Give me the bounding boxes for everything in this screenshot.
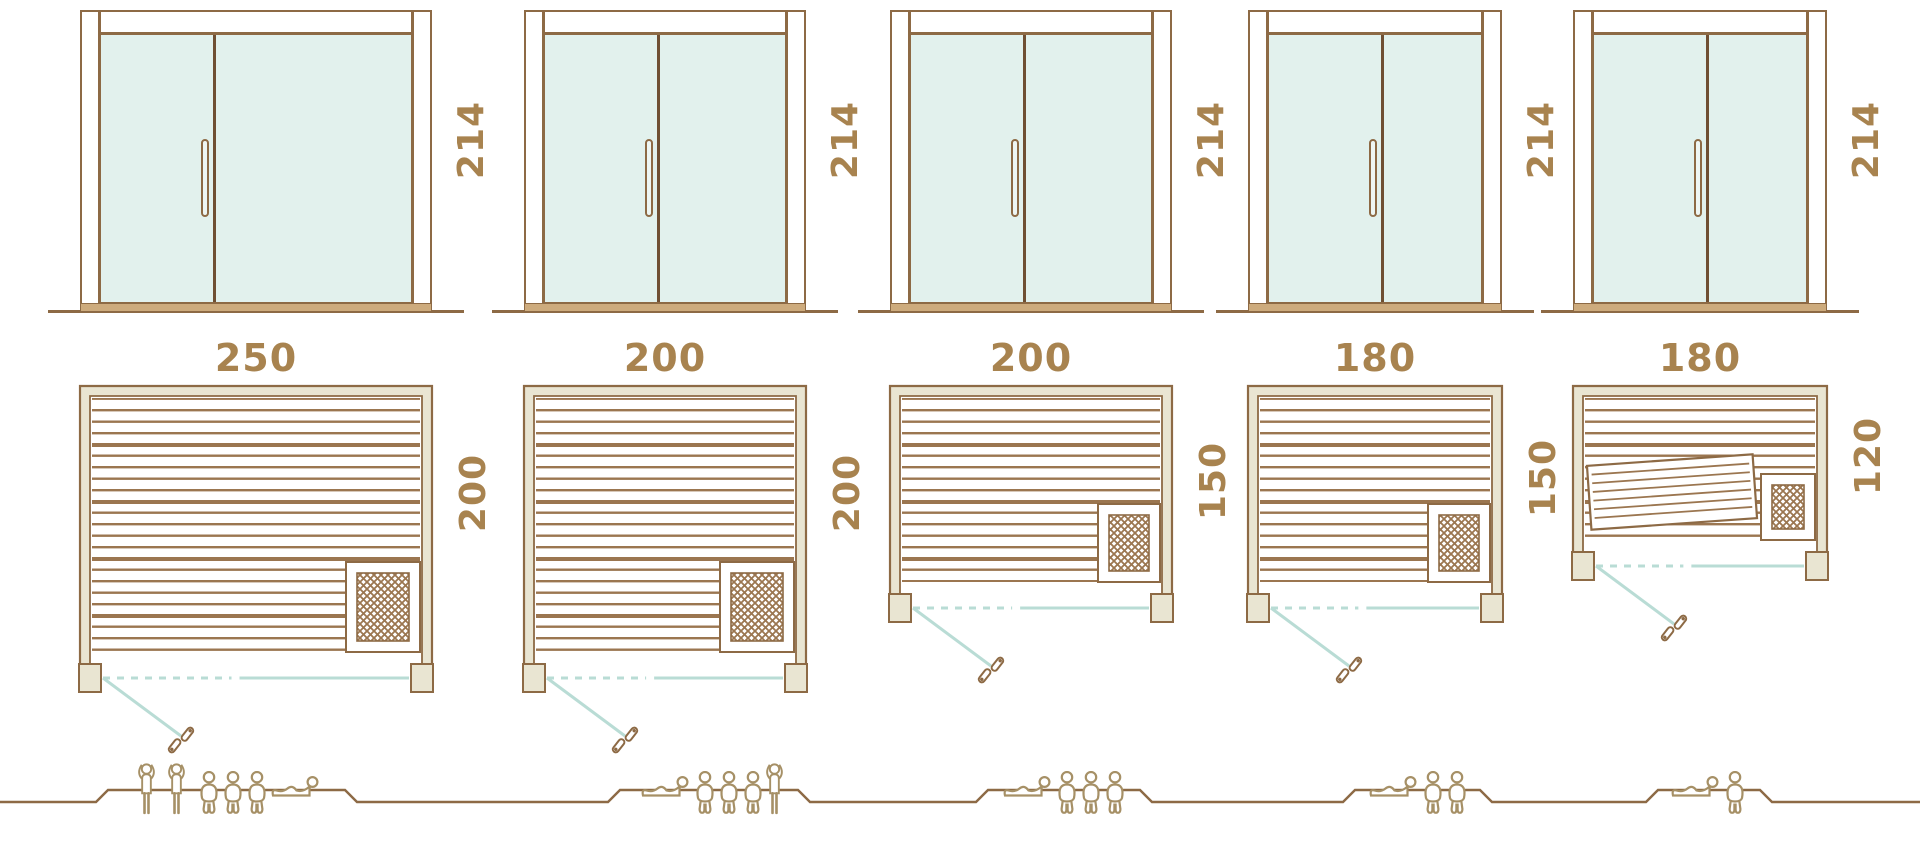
plan-depth-dimension: 120 xyxy=(1849,396,1889,516)
floor-plan xyxy=(1246,384,1504,716)
corner-post-right xyxy=(1481,594,1503,622)
standing-person-icon xyxy=(767,764,782,812)
sitting-person-icon xyxy=(1059,772,1074,813)
door-frame-right xyxy=(1807,10,1827,305)
floor-line xyxy=(1541,310,1859,313)
corner-post-right xyxy=(1806,552,1828,580)
door-swing-arc xyxy=(913,608,991,666)
door-threshold xyxy=(80,303,432,312)
plan-width-dimension: 200 xyxy=(524,337,806,379)
capacity-group-sauna-250x200 xyxy=(139,764,317,812)
plan-walls xyxy=(80,386,432,668)
door-threshold xyxy=(1248,303,1502,312)
door-threshold xyxy=(524,303,806,312)
heater-surround xyxy=(1098,504,1160,582)
door-height-dimension: 214 xyxy=(1192,80,1232,200)
glass-divider xyxy=(657,35,660,302)
heater-grille-icon xyxy=(1109,515,1149,571)
plan-width-dimension: 180 xyxy=(1248,337,1502,379)
lying-person-icon xyxy=(1371,777,1416,795)
door-elevation xyxy=(1248,10,1502,312)
lying-person-icon xyxy=(273,777,318,795)
glass-divider xyxy=(1381,35,1384,302)
sitting-person-icon xyxy=(1425,772,1440,813)
door-frame-left xyxy=(1248,10,1268,305)
corner-post-left xyxy=(523,664,545,692)
floor-plan xyxy=(1571,384,1829,674)
sitting-person-icon xyxy=(249,772,264,813)
glass-divider xyxy=(1023,35,1026,302)
standing-person-icon xyxy=(169,764,184,812)
door-frame-right xyxy=(1482,10,1502,305)
tilted-fold-bench xyxy=(1587,454,1757,529)
bench-slats xyxy=(902,398,1160,582)
door-handle xyxy=(645,139,653,217)
plan-walls xyxy=(890,386,1172,598)
door-elevation xyxy=(1573,10,1827,312)
door-handle-glyph xyxy=(978,655,1005,686)
sauna-size-diagram: 214 250 200 214 200 200 xyxy=(0,0,1920,843)
glass-divider xyxy=(213,35,216,302)
corner-post-left xyxy=(889,594,911,622)
glass-panels xyxy=(543,33,787,304)
lying-person-icon xyxy=(643,777,688,795)
bench-slats xyxy=(1260,398,1490,582)
door-handle xyxy=(1694,139,1702,217)
lying-person-icon xyxy=(1673,777,1718,795)
door-height-dimension: 214 xyxy=(1847,80,1887,200)
door-handle xyxy=(1369,139,1377,217)
heater-grille-icon xyxy=(1439,515,1479,571)
door-frame-left xyxy=(524,10,544,305)
corner-post-right xyxy=(1151,594,1173,622)
sitting-person-icon xyxy=(745,772,760,813)
plan-walls xyxy=(1573,386,1827,556)
people-figures xyxy=(139,764,1742,812)
door-swing-arc xyxy=(1271,608,1349,666)
door-frame-right xyxy=(412,10,432,305)
corner-post-left xyxy=(1572,552,1594,580)
heater-surround xyxy=(1428,504,1490,582)
bench-slats xyxy=(536,398,794,652)
plan-depth-dimension: 200 xyxy=(454,433,494,553)
capacity-group-sauna-180x120 xyxy=(1673,772,1743,813)
plan-depth-dimension: 150 xyxy=(1524,418,1564,538)
corner-post-right xyxy=(785,664,807,692)
door-threshold xyxy=(890,303,1172,312)
door-header xyxy=(1592,10,1808,34)
sitting-person-icon xyxy=(721,772,736,813)
door-header xyxy=(1267,10,1483,34)
standing-person-icon xyxy=(139,764,154,812)
door-handle-glyph xyxy=(1336,655,1363,686)
door-height-dimension: 214 xyxy=(452,80,492,200)
glass-panels xyxy=(1267,33,1483,304)
heater-grille-icon xyxy=(1772,485,1804,529)
glass-panels xyxy=(1592,33,1808,304)
door-frame-left xyxy=(890,10,910,305)
heater-grille-icon xyxy=(357,573,409,641)
sitting-person-icon xyxy=(697,772,712,813)
door-header xyxy=(909,10,1153,34)
floor-plan xyxy=(888,384,1174,716)
corner-post-right xyxy=(411,664,433,692)
plan-width-dimension: 250 xyxy=(80,337,432,379)
door-frame-left xyxy=(1573,10,1593,305)
door-frame-right xyxy=(786,10,806,305)
door-height-dimension: 214 xyxy=(1522,80,1562,200)
glass-panels xyxy=(99,33,413,304)
door-header xyxy=(543,10,787,34)
heater-surround xyxy=(1761,474,1815,540)
heater-surround xyxy=(720,562,794,652)
capacity-group-sauna-180x150 xyxy=(1371,772,1465,813)
capacity-group-sauna-200x200 xyxy=(643,764,782,812)
glass-divider xyxy=(1706,35,1709,302)
door-elevation xyxy=(890,10,1172,312)
door-elevation xyxy=(80,10,432,312)
plan-walls xyxy=(1248,386,1502,598)
door-handle-glyph xyxy=(1661,613,1688,644)
door-threshold xyxy=(1573,303,1827,312)
sitting-person-icon xyxy=(201,772,216,813)
floor-line xyxy=(492,310,838,313)
door-frame-left xyxy=(80,10,100,305)
door-handle xyxy=(1011,139,1019,217)
bench-slats xyxy=(92,398,420,652)
plan-width-dimension: 200 xyxy=(890,337,1172,379)
sitting-person-icon xyxy=(225,772,240,813)
corner-post-left xyxy=(79,664,101,692)
sitting-person-icon xyxy=(1449,772,1464,813)
door-elevation xyxy=(524,10,806,312)
plan-depth-dimension: 150 xyxy=(1194,421,1234,541)
bench-slats xyxy=(1585,398,1815,540)
plan-depth-dimension: 200 xyxy=(828,433,868,553)
heater-surround xyxy=(346,562,420,652)
floor-line xyxy=(1216,310,1534,313)
floor-line xyxy=(48,310,464,313)
glass-panels xyxy=(909,33,1153,304)
floor-line xyxy=(858,310,1204,313)
capacity-row xyxy=(0,715,1920,843)
heater-grille-icon xyxy=(731,573,783,641)
plan-width-dimension: 180 xyxy=(1573,337,1827,379)
capacity-group-sauna-200x150 xyxy=(1005,772,1123,813)
lying-person-icon xyxy=(1005,777,1050,795)
sitting-person-icon xyxy=(1107,772,1122,813)
sitting-person-icon xyxy=(1727,772,1742,813)
door-swing-arc xyxy=(1596,566,1674,624)
corner-post-left xyxy=(1247,594,1269,622)
door-handle xyxy=(201,139,209,217)
sitting-person-icon xyxy=(1083,772,1098,813)
door-height-dimension: 214 xyxy=(826,80,866,200)
door-frame-right xyxy=(1152,10,1172,305)
door-header xyxy=(99,10,413,34)
plan-walls xyxy=(524,386,806,668)
